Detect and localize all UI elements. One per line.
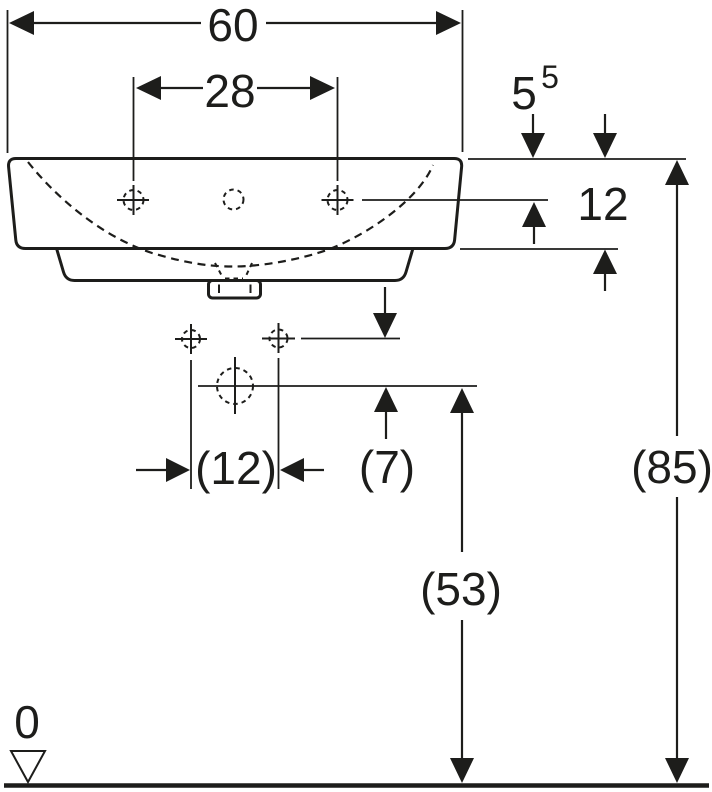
arrowhead-right-point <box>166 458 190 482</box>
dim-label-floor-datum: 0 <box>14 696 40 748</box>
arrowhead-up <box>374 387 398 412</box>
arrowhead-down <box>521 133 545 158</box>
arrowhead-up <box>450 388 474 413</box>
dimension-rim-to-apron: 12 <box>577 114 628 291</box>
dim-label-rim-to-tap-hole-sup: 5 <box>541 59 559 95</box>
fixing-hole-right-icon <box>262 323 295 353</box>
dim-label-floor-to-rim: (85) <box>631 441 712 493</box>
dim-label-rim-to-tap-hole: 5 <box>511 67 537 119</box>
dim-label-overall-width: 60 <box>207 0 258 51</box>
dim-label-tap-hole-spacing: 28 <box>204 65 255 117</box>
basin-body-outline <box>9 159 462 249</box>
arrowhead-down <box>373 313 397 338</box>
fixing-hole-left-icon <box>175 324 207 354</box>
dim-label-floor-to-drain: (53) <box>420 563 502 615</box>
dimension-fixing-to-drain: (7) <box>359 287 415 493</box>
arrowhead-up <box>593 250 617 275</box>
dimension-floor-to-drain: (53) <box>420 388 502 783</box>
dim-label-fixing-hole-spacing: (12) <box>195 442 277 494</box>
arrowhead-down <box>665 758 689 783</box>
arrowhead-right <box>436 11 461 35</box>
drain-fitting <box>209 281 261 299</box>
washbasin-dimension-diagram: 60 28 5 5 12 (12) <box>0 0 712 792</box>
arrowhead-left <box>136 76 161 100</box>
dimension-rim-to-tap-hole: 5 5 <box>511 59 559 244</box>
dim-label-rim-to-apron: 12 <box>577 178 628 230</box>
arrowhead-left <box>9 11 34 35</box>
arrowhead-up <box>522 202 546 227</box>
dimension-floor-to-rim: (85) <box>631 160 712 783</box>
washbasin-front-view <box>9 159 462 299</box>
arrowhead-up <box>665 160 689 185</box>
dimension-fixing-hole-spacing: (12) <box>136 358 324 494</box>
arrowhead-down <box>593 133 617 158</box>
drain-funnel-hidden-contour <box>215 263 252 279</box>
basin-apron-outline <box>57 250 413 281</box>
arrowhead-left-point <box>280 458 304 482</box>
arrowhead-right <box>310 76 335 100</box>
arrowhead-down <box>450 758 474 783</box>
technical-drawing-page: 60 28 5 5 12 (12) <box>0 0 712 792</box>
floor-datum: 0 <box>4 696 709 786</box>
datum-triangle-icon <box>11 751 45 782</box>
dim-label-fixing-to-drain: (7) <box>359 441 415 493</box>
